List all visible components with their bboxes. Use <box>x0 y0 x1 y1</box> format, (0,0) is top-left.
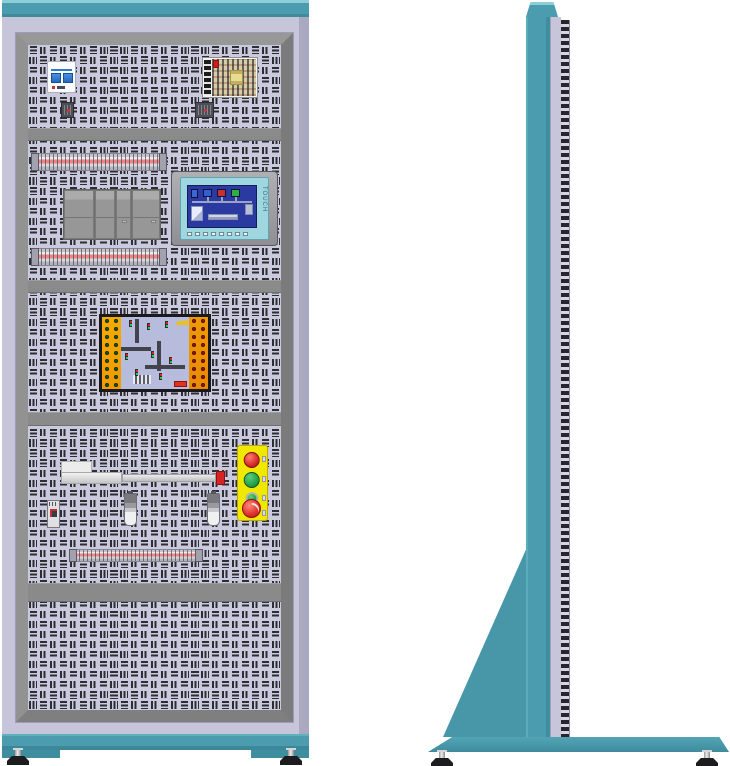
perforation-cell <box>190 146 200 156</box>
perforation-cell <box>251 257 261 267</box>
perforation-cell <box>129 690 139 700</box>
pneumatic-cylinder-rod <box>122 474 216 482</box>
perforation-cell <box>210 559 220 569</box>
perforation-cell <box>190 680 200 690</box>
traffic-light-green <box>130 324 132 326</box>
perforation-cell <box>89 660 99 670</box>
perforation-cell <box>170 629 180 639</box>
perforation-cell <box>261 367 271 377</box>
perforation-cell <box>79 639 89 649</box>
perforation-cell <box>89 267 99 277</box>
perforation-cell <box>160 680 170 690</box>
perforation-cell <box>160 226 170 236</box>
perforation-cell <box>119 116 129 126</box>
perforation-cell <box>180 498 190 508</box>
perforation-cell <box>68 357 78 367</box>
perforation-cell <box>200 660 210 670</box>
perforation-cell <box>149 116 159 126</box>
perforation-cell <box>139 539 149 549</box>
perforation-cell <box>119 65 129 75</box>
perforation-cell <box>48 428 58 438</box>
perforation-cell <box>271 307 281 317</box>
perforation-cell <box>68 388 78 398</box>
perforation-cell <box>68 317 78 327</box>
perforation-cell <box>149 670 159 680</box>
perforation-cell <box>79 609 89 619</box>
perforation-cell <box>119 680 129 690</box>
perforation-cell <box>119 85 129 95</box>
perforation-cell <box>200 650 210 660</box>
perforation-cell <box>271 428 281 438</box>
perforation-cell <box>170 156 180 166</box>
perforation-cell <box>48 458 58 468</box>
perforation-cell <box>149 267 159 277</box>
perforation-cell <box>251 609 261 619</box>
perforation-cell <box>149 539 159 549</box>
board-terminal-dot <box>201 375 205 379</box>
perforation-cell <box>160 498 170 508</box>
perforation-cell <box>99 116 109 126</box>
perforation-cell <box>220 559 230 569</box>
perforation-cell <box>129 448 139 458</box>
perforation-cell <box>230 388 240 398</box>
perforation-cell <box>230 45 240 55</box>
board-terminal-dot <box>192 375 196 379</box>
perforation-cell <box>251 690 261 700</box>
side-perforation-edge <box>561 20 570 737</box>
perforation-cell <box>89 388 99 398</box>
perforation-cell <box>79 327 89 337</box>
screen-right-tank <box>245 204 253 215</box>
perforation-cell <box>48 478 58 488</box>
perforation-cell <box>119 55 129 65</box>
perforation-cell <box>271 327 281 337</box>
perforation-cell <box>99 438 109 448</box>
perforation-cell <box>220 146 230 156</box>
perforation-cell <box>241 700 251 710</box>
perforation-cell <box>251 569 261 579</box>
perforation-cell <box>271 156 281 166</box>
perforation-cell <box>251 267 261 277</box>
perforation-cell <box>170 75 180 85</box>
psu-transformer <box>230 70 243 85</box>
perforation-cell <box>230 297 240 307</box>
perforation-cell <box>129 65 139 75</box>
perforation-cell <box>190 488 200 498</box>
perforation-cell <box>190 660 200 670</box>
traffic-light <box>151 351 154 358</box>
perforation-cell <box>28 206 38 216</box>
perforation-cell <box>180 650 190 660</box>
perforation-cell <box>261 45 271 55</box>
perforation-cell <box>230 619 240 629</box>
perforation-cell <box>210 307 220 317</box>
perforation-cell <box>210 337 220 347</box>
perforation-cell <box>160 650 170 660</box>
plc-port <box>122 220 127 223</box>
perforation-cell <box>271 65 281 75</box>
perforation-cell <box>48 559 58 569</box>
perforation-cell <box>139 398 149 408</box>
perforation-cell <box>68 498 78 508</box>
perforation-cell <box>79 569 89 579</box>
perforation-cell <box>68 448 78 458</box>
perforation-cell <box>139 458 149 468</box>
perforation-cell <box>210 317 220 327</box>
perforation-cell <box>38 639 48 649</box>
perforation-cell <box>99 75 109 85</box>
perforation-cell <box>58 267 68 277</box>
perforation-cell <box>271 458 281 468</box>
perforation-cell <box>170 508 180 518</box>
perforation-cell <box>160 428 170 438</box>
perforation-cell <box>251 428 261 438</box>
perforation-cell <box>38 357 48 367</box>
perforation-cell <box>210 388 220 398</box>
perforation-cell <box>271 660 281 670</box>
perforation-cell <box>271 468 281 478</box>
perforation-cell <box>129 75 139 85</box>
perforation-cell <box>119 428 129 438</box>
breaker-indicator-marks <box>52 86 71 89</box>
perforation-cell <box>261 307 271 317</box>
perforation-cell <box>190 519 200 529</box>
perforation-cell <box>271 367 281 377</box>
perforation-cell <box>230 650 240 660</box>
perforation-cell <box>89 529 99 539</box>
perforation-cell <box>28 45 38 55</box>
perforation-cell <box>170 65 180 75</box>
perforation-cell <box>251 639 261 649</box>
terminal-strip <box>32 153 166 171</box>
perforation-cell <box>68 176 78 186</box>
perforation-cell <box>28 438 38 448</box>
perforation-cell <box>89 619 99 629</box>
perforation-cell <box>129 85 139 95</box>
hmi-function-key <box>243 232 248 236</box>
board-terminal-dot <box>114 327 118 331</box>
perforation-cell <box>38 529 48 539</box>
perforation-cell <box>109 660 119 670</box>
perforation-cell <box>119 539 129 549</box>
traffic-simulation-board <box>99 314 211 392</box>
perforation-cell <box>68 529 78 539</box>
perforation-cell <box>99 529 109 539</box>
crosswalk <box>133 375 151 384</box>
emergency-stop-button <box>241 499 260 518</box>
traffic-light <box>169 357 172 364</box>
traffic-light <box>159 373 162 380</box>
perforation-cell <box>79 55 89 65</box>
perforation-cell <box>58 347 68 357</box>
perforation-cell <box>58 398 68 408</box>
perforation-cell <box>38 690 48 700</box>
perforation-cell <box>241 428 251 438</box>
perforation-cell <box>261 549 271 559</box>
perforation-cell <box>48 357 58 367</box>
perforation-cell <box>160 55 170 65</box>
perforation-cell <box>109 438 119 448</box>
perforation-cell <box>28 186 38 196</box>
perforation-cell <box>79 438 89 448</box>
perforation-cell <box>170 569 180 579</box>
perforation-cell <box>139 619 149 629</box>
perforation-cell <box>129 700 139 710</box>
traffic-light-green <box>136 373 138 375</box>
perforation-cell <box>129 639 139 649</box>
perforation-cell <box>48 609 58 619</box>
perforation-cell <box>109 65 119 75</box>
perforation-cell <box>180 95 190 105</box>
perforation-cell <box>139 95 149 105</box>
perforation-cell <box>99 176 109 186</box>
perforation-cell <box>251 297 261 307</box>
perforation-cell <box>48 45 58 55</box>
perforation-cell <box>210 629 220 639</box>
perforation-cell <box>149 85 159 95</box>
perforation-cell <box>129 670 139 680</box>
perforation-cell <box>119 438 129 448</box>
perforation-cell <box>38 206 48 216</box>
perforation-cell <box>58 549 68 559</box>
perforation-cell <box>200 539 210 549</box>
perforation-cell <box>210 398 220 408</box>
perforation-cell <box>99 680 109 690</box>
foot-base <box>431 758 453 766</box>
perforation-cell <box>220 629 230 639</box>
button-tag <box>262 495 266 501</box>
perforation-cell <box>160 488 170 498</box>
perforation-cell <box>129 116 139 126</box>
perforation-cell <box>109 85 119 95</box>
perforation-cell <box>109 297 119 307</box>
perforation-cell <box>230 529 240 539</box>
perforation-cell <box>230 670 240 680</box>
perforation-cell <box>261 85 271 95</box>
perforation-cell <box>28 357 38 367</box>
perforation-cell <box>170 116 180 126</box>
perforation-cell <box>230 428 240 438</box>
perforation-cell <box>28 307 38 317</box>
perforation-cell <box>180 529 190 539</box>
perforation-cell <box>261 680 271 690</box>
perforation-cell <box>230 539 240 549</box>
perforation-cell <box>271 529 281 539</box>
perforation-cell <box>89 519 99 529</box>
side-support-brace <box>443 545 528 737</box>
perforation-cell <box>139 639 149 649</box>
board-terminal-dot <box>192 335 196 339</box>
perforation-cell <box>109 428 119 438</box>
perforation-cell <box>200 609 210 619</box>
perforation-cell <box>180 297 190 307</box>
perforation-cell <box>48 116 58 126</box>
perforation-cell <box>251 156 261 166</box>
perforation-cell <box>190 569 200 579</box>
hmi-touch-label: TOUCH <box>261 186 267 212</box>
board-terminal-dot <box>192 319 196 323</box>
perforation-cell <box>160 45 170 55</box>
board-terminal-dot <box>201 383 205 387</box>
perforation-cell <box>139 519 149 529</box>
perforation-cell <box>129 95 139 105</box>
perforation-cell <box>79 378 89 388</box>
breaker-toggle <box>51 73 61 83</box>
perforation-cell <box>28 619 38 629</box>
perforation-cell <box>170 539 180 549</box>
perforation-cell <box>261 529 271 539</box>
perforation-cell <box>271 559 281 569</box>
perforation-cell <box>109 619 119 629</box>
perforation-cell <box>28 196 38 206</box>
perforation-cell <box>149 398 159 408</box>
perforation-cell <box>230 378 240 388</box>
perforation-cell <box>241 378 251 388</box>
perforation-cell <box>79 498 89 508</box>
perforation-cell <box>38 670 48 680</box>
perforation-cell <box>241 690 251 700</box>
perforation-cell <box>89 569 99 579</box>
perforation-cell <box>68 690 78 700</box>
hmi-function-key <box>211 232 216 236</box>
perforation-cell <box>241 388 251 398</box>
plc-port <box>151 220 156 223</box>
traffic-light-green <box>152 355 154 357</box>
perforation-cell <box>48 196 58 206</box>
perforation-cell <box>220 458 230 468</box>
perforation-cell <box>160 619 170 629</box>
perforation-cell <box>170 488 180 498</box>
perforation-cell <box>220 519 230 529</box>
perforation-cell <box>119 619 129 629</box>
board-terminal-dot <box>105 343 109 347</box>
perforation-cell <box>261 65 271 75</box>
section-divider <box>28 280 281 293</box>
perforation-cell <box>38 45 48 55</box>
perforation-cell <box>139 650 149 660</box>
perforation-cell <box>251 357 261 367</box>
side-panel-edge <box>550 17 561 737</box>
perforation-cell <box>89 176 99 186</box>
perforation-cell <box>119 75 129 85</box>
perforation-cell <box>79 398 89 408</box>
perforation-cell <box>28 337 38 347</box>
perforation-cell <box>48 660 58 670</box>
perforation-cell <box>28 680 38 690</box>
perforation-cell <box>241 105 251 115</box>
perforation-cell <box>48 549 58 559</box>
perforation-cell <box>230 367 240 377</box>
perforation-cell <box>139 55 149 65</box>
perforation-cell <box>251 317 261 327</box>
hmi-function-key <box>195 232 200 236</box>
perforation-cell <box>160 529 170 539</box>
perforation-cell <box>99 639 109 649</box>
perforation-cell <box>68 639 78 649</box>
perforation-cell <box>190 85 200 95</box>
perforation-cell <box>230 317 240 327</box>
perforation-cell <box>210 156 220 166</box>
perforation-cell <box>180 660 190 670</box>
perforation-cell <box>261 75 271 85</box>
perforation-cell <box>139 700 149 710</box>
perforation-cell <box>220 670 230 680</box>
perforation-cell <box>180 508 190 518</box>
perforation-cell <box>271 398 281 408</box>
board-terminal-dot <box>114 319 118 323</box>
perforation-cell <box>251 347 261 357</box>
perforation-cell <box>190 257 200 267</box>
traffic-light-red <box>160 374 162 376</box>
perforation-cell <box>48 216 58 226</box>
perforation-cell <box>241 660 251 670</box>
perforation-cell <box>170 297 180 307</box>
perforation-cell <box>180 700 190 710</box>
perforation-cell <box>230 680 240 690</box>
traffic-light-green <box>160 377 162 379</box>
screen-tank-red <box>217 189 226 197</box>
push-button-station <box>237 445 268 521</box>
perforation-cell <box>190 55 200 65</box>
perforation-cell <box>220 690 230 700</box>
perforation-cell <box>129 458 139 468</box>
perforation-cell <box>58 307 68 317</box>
perforation-cell <box>89 367 99 377</box>
foot-base <box>696 758 718 766</box>
switching-power-supply <box>202 57 258 98</box>
perforation-cell <box>220 569 230 579</box>
perforation-cell <box>271 55 281 65</box>
perforation-cell <box>241 327 251 337</box>
perforation-cell <box>28 529 38 539</box>
proximity-sensor <box>207 493 220 526</box>
perforation-cell <box>180 45 190 55</box>
perforation-cell <box>271 267 281 277</box>
perforation-cell <box>89 680 99 690</box>
perforation-cell <box>139 488 149 498</box>
perforation-cell <box>149 569 159 579</box>
perforation-cell <box>139 529 149 539</box>
perforation-cell <box>68 569 78 579</box>
perforation-cell <box>190 529 200 539</box>
perforation-cell <box>48 297 58 307</box>
board-terminal-dot <box>114 383 118 387</box>
perforation-cell <box>38 116 48 126</box>
perforation-cell <box>58 690 68 700</box>
perforation-cell <box>149 508 159 518</box>
perforation-cell <box>241 156 251 166</box>
board-terminal-dot <box>114 351 118 355</box>
perforation-cell <box>210 529 220 539</box>
perforation-cell <box>210 690 220 700</box>
board-right-terminal-strip <box>189 317 208 389</box>
perforation-cell <box>139 508 149 518</box>
perforation-cell <box>58 650 68 660</box>
perforation-cell <box>170 55 180 65</box>
perforation-cell <box>48 317 58 327</box>
perforation-cell <box>251 146 261 156</box>
perforation-cell <box>261 317 271 327</box>
perforation-cell <box>160 660 170 670</box>
perforation-cell <box>261 327 271 337</box>
perforation-cell <box>230 559 240 569</box>
perforation-cell <box>210 146 220 156</box>
perforation-cell <box>200 45 210 55</box>
perforation-cell <box>190 438 200 448</box>
perforation-cell <box>261 378 271 388</box>
traffic-light <box>125 353 128 360</box>
perforation-cell <box>251 307 261 317</box>
